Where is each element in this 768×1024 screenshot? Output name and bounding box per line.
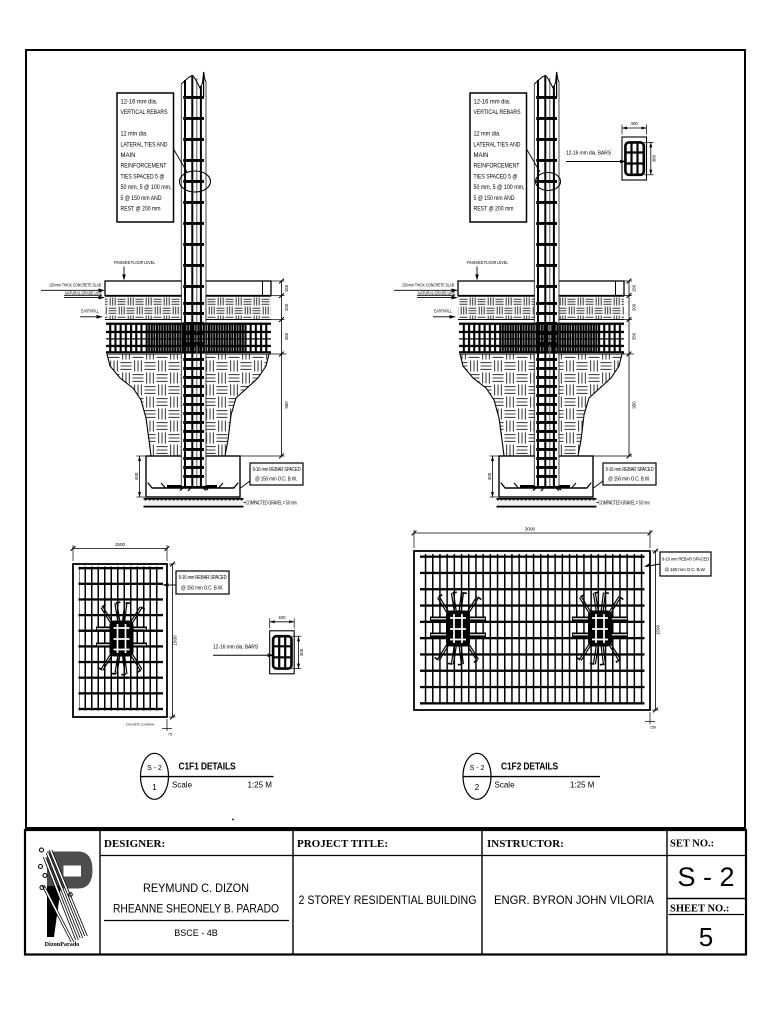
- svg-text:950: 950: [284, 401, 289, 409]
- svg-text:MAIN: MAIN: [121, 152, 136, 159]
- svg-text:VERTICAL REBARS: VERTICAL REBARS: [121, 109, 168, 116]
- svg-text:ENGR. BYRON JOHN VILORIA: ENGR. BYRON JOHN VILORIA: [494, 893, 654, 907]
- svg-text:150 mm THICK CONCRETE SLAB: 150 mm THICK CONCRETE SLAB: [49, 283, 101, 288]
- svg-text:5 @ 150 mm AND: 5 @ 150 mm AND: [474, 195, 515, 202]
- svg-text:9-16 mm REBAR SPACED: 9-16 mm REBAR SPACED: [253, 467, 301, 473]
- svg-text:350: 350: [284, 332, 289, 340]
- svg-text:EARTHFILL: EARTHFILL: [81, 309, 99, 314]
- svg-text:1500: 1500: [656, 624, 661, 635]
- svg-text:FINISHED FLOOR LEVEL: FINISHED FLOOR LEVEL: [114, 260, 155, 266]
- svg-text:5: 5: [699, 922, 713, 952]
- svg-text:150 mm THICK CONCRETE SLAB: 150 mm THICK CONCRETE SLAB: [402, 283, 454, 288]
- svg-text:Scale: Scale: [495, 780, 516, 789]
- svg-text:COMPACTED GRAVEL = 50 mm: COMPACTED GRAVEL = 50 mm: [246, 501, 297, 507]
- svg-text:2 STOREY RESIDENTIAL BUILDING: 2 STOREY RESIDENTIAL BUILDING: [299, 893, 477, 907]
- svg-text:SET NO.:: SET NO.:: [670, 839, 714, 850]
- svg-text:50 mm, 5 @ 100 mm,: 50 mm, 5 @ 100 mm,: [474, 184, 525, 191]
- svg-text:1500: 1500: [173, 635, 178, 646]
- svg-text:REINFORCEMENT: REINFORCEMENT: [121, 163, 167, 170]
- svg-text:3000: 3000: [525, 527, 536, 532]
- svg-text:CONCRETE COVERING: CONCRETE COVERING: [125, 723, 154, 727]
- svg-text:400: 400: [278, 615, 286, 620]
- svg-text:@ 150 mm O.C. B.W.: @ 150 mm O.C. B.W.: [255, 477, 297, 483]
- svg-text:150: 150: [632, 284, 637, 292]
- svg-text:MAIN: MAIN: [474, 152, 489, 159]
- svg-text:REYMUND C. DIZON: REYMUND C. DIZON: [143, 881, 249, 895]
- svg-text:C1F2 DETAILS: C1F2 DETAILS: [501, 760, 558, 772]
- svg-text:TIES SPACED 5 @: TIES SPACED 5 @: [121, 173, 165, 180]
- svg-text:12-16 mm dia. BARS: 12-16 mm dia. BARS: [566, 151, 611, 157]
- svg-text:SHEET NO.:: SHEET NO.:: [670, 904, 729, 915]
- svg-text:LATERAL TIES AND: LATERAL TIES AND: [474, 141, 521, 148]
- svg-text:S - 2: S - 2: [470, 765, 485, 772]
- svg-text:1:25 M: 1:25 M: [570, 780, 595, 789]
- svg-text:BSCE - 4B: BSCE - 4B: [174, 928, 218, 938]
- svg-text:1:25 M: 1:25 M: [248, 780, 273, 789]
- svg-text:200: 200: [632, 303, 637, 311]
- svg-text:9-16 mm REBAR SPACED: 9-16 mm REBAR SPACED: [662, 557, 710, 563]
- svg-text:LATERAL TIES AND: LATERAL TIES AND: [121, 141, 168, 148]
- svg-text:RHEANNE SHEONELY B. PARADO: RHEANNE SHEONELY B. PARADO: [113, 902, 279, 916]
- svg-text:950: 950: [632, 401, 637, 409]
- svg-text:INSTRUCTOR:: INSTRUCTOR:: [487, 838, 564, 850]
- svg-text:400: 400: [134, 472, 139, 480]
- svg-text:S - 2: S - 2: [147, 765, 162, 772]
- svg-text:400: 400: [487, 472, 492, 480]
- svg-text:12 mm dia.: 12 mm dia.: [474, 131, 501, 138]
- svg-text:@ 150 mm O.C. B.W.: @ 150 mm O.C. B.W.: [608, 477, 650, 483]
- svg-text:DESIGNER:: DESIGNER:: [104, 838, 165, 850]
- svg-text:12-16 mm dia.: 12-16 mm dia.: [121, 99, 158, 106]
- svg-text:Scale: Scale: [172, 780, 193, 789]
- svg-text:PROJECT TITLE:: PROJECT TITLE:: [297, 838, 388, 850]
- svg-text:5 @ 150 mm AND: 5 @ 150 mm AND: [121, 195, 162, 202]
- svg-text:REST @ 200 mm: REST @ 200 mm: [474, 206, 514, 213]
- svg-text:75: 75: [168, 733, 172, 737]
- svg-text:FINISHED FLOOR LEVEL: FINISHED FLOOR LEVEL: [467, 260, 508, 266]
- svg-text:C1F1 DETAILS: C1F1 DETAILS: [179, 760, 236, 772]
- svg-text:300: 300: [652, 154, 657, 162]
- svg-text:VERTICAL REBARS: VERTICAL REBARS: [474, 109, 521, 116]
- svg-text:S - 2: S - 2: [677, 862, 734, 892]
- svg-text:DizonParado: DizonParado: [45, 941, 80, 948]
- svg-text:50 mm, 5 @ 100 mm,: 50 mm, 5 @ 100 mm,: [121, 184, 172, 191]
- svg-text:9-16 mm REBAR SPACED: 9-16 mm REBAR SPACED: [179, 575, 227, 581]
- svg-text:350: 350: [632, 332, 637, 340]
- svg-text:COMPACTED GRAVEL = 50 mm: COMPACTED GRAVEL = 50 mm: [599, 501, 650, 507]
- svg-text:TIES SPACED 5 @: TIES SPACED 5 @: [474, 173, 518, 180]
- svg-text:150: 150: [650, 726, 656, 730]
- svg-text:1500: 1500: [115, 542, 126, 547]
- svg-text:9-16 mm REBAR SPACED: 9-16 mm REBAR SPACED: [606, 467, 654, 473]
- svg-text:12 mm dia.: 12 mm dia.: [121, 131, 148, 138]
- svg-text:EARTHFILL: EARTHFILL: [434, 309, 452, 314]
- svg-text:2: 2: [475, 783, 480, 792]
- svg-text:12-16 mm dia.: 12-16 mm dia.: [474, 99, 511, 106]
- svg-text:NATURAL GRADE LINE: NATURAL GRADE LINE: [65, 290, 102, 295]
- svg-text:@ 150 mm O.C. B.W.: @ 150 mm O.C. B.W.: [665, 567, 706, 573]
- svg-text:REST @ 200 mm: REST @ 200 mm: [121, 206, 161, 213]
- svg-text:150: 150: [284, 284, 289, 292]
- svg-text:REINFORCEMENT: REINFORCEMENT: [474, 163, 520, 170]
- svg-text:300: 300: [299, 648, 304, 656]
- svg-text:NATURAL GRADE LINE: NATURAL GRADE LINE: [418, 290, 455, 295]
- svg-text:@ 150 mm O.C. B.W.: @ 150 mm O.C. B.W.: [181, 586, 223, 592]
- svg-text:1: 1: [152, 783, 157, 792]
- svg-text:400: 400: [631, 121, 639, 126]
- svg-text:200: 200: [284, 303, 289, 311]
- svg-text:12-16 mm dia. BARS: 12-16 mm dia. BARS: [213, 644, 258, 650]
